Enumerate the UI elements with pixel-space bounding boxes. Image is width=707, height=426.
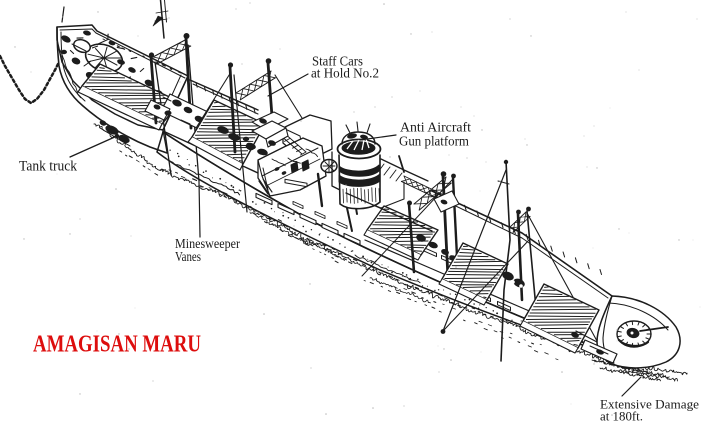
svg-text:Gun platform: Gun platform bbox=[399, 135, 469, 150]
svg-text:AMAGISAN MARU: AMAGISAN MARU bbox=[33, 332, 201, 358]
svg-text:Tank truck: Tank truck bbox=[19, 159, 77, 175]
svg-text:Vanes: Vanes bbox=[175, 249, 201, 264]
svg-text:at 180ft.: at 180ft. bbox=[600, 409, 643, 424]
svg-text:at Hold No.2: at Hold No.2 bbox=[311, 66, 379, 81]
svg-text:Anti Aircraft: Anti Aircraft bbox=[400, 121, 471, 136]
